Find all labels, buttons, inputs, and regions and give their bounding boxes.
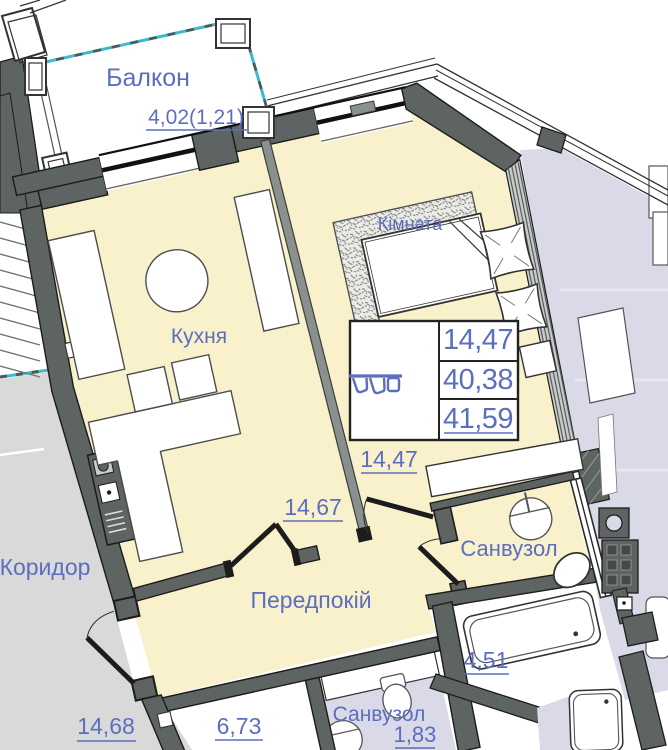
svg-text:Кухня: Кухня xyxy=(171,325,227,348)
svg-text:4,51: 4,51 xyxy=(464,647,509,673)
svg-text:Передпокій: Передпокій xyxy=(250,587,371,613)
svg-text:14,47: 14,47 xyxy=(360,446,418,472)
svg-text:Коридор: Коридор xyxy=(0,554,90,580)
svg-text:41,59: 41,59 xyxy=(443,403,513,435)
svg-text:Кімната: Кімната xyxy=(378,214,443,234)
svg-text:1,83: 1,83 xyxy=(394,722,437,747)
svg-text:6,73: 6,73 xyxy=(217,713,262,739)
svg-text:14,67: 14,67 xyxy=(284,494,342,520)
svg-text:40,38: 40,38 xyxy=(443,364,513,396)
svg-text:Балкон: Балкон xyxy=(106,64,190,92)
svg-text:Санвузол: Санвузол xyxy=(460,536,557,561)
svg-text:14,47: 14,47 xyxy=(443,324,513,356)
svg-text:14,68: 14,68 xyxy=(77,713,135,739)
svg-text:4,02(1,21): 4,02(1,21) xyxy=(148,106,244,129)
